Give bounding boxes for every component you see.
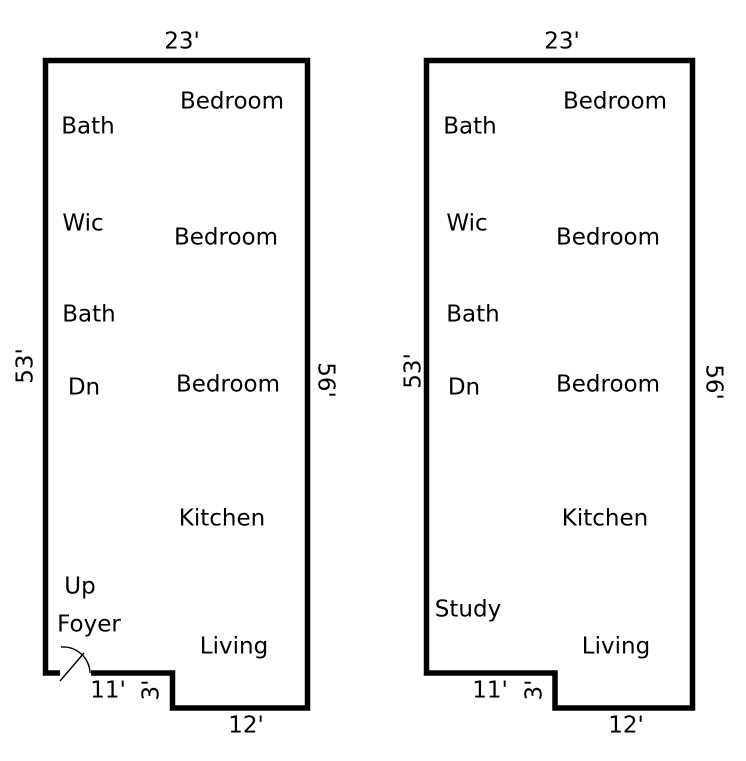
right-unit-bottom-left-dimension: 11' (472, 680, 508, 703)
left-unit-kitchen-label: Kitchen (179, 508, 265, 531)
left-unit-bedroom-top-label: Bedroom (180, 91, 284, 114)
left-unit-left-depth-dimension: 53' (15, 348, 38, 384)
left-unit-wic-label: Wic (62, 213, 103, 236)
left-unit-bedroom-middle-label: Bedroom (174, 227, 278, 250)
left-unit-stairs-down-label: Dn (68, 377, 100, 400)
left-unit-foyer-label: Foyer (57, 614, 121, 637)
right-unit-bath-middle-label: Bath (446, 304, 499, 327)
right-unit-left-depth-dimension: 53' (403, 353, 426, 389)
right-unit-top-width-dimension: 23' (544, 31, 580, 54)
right-unit-bedroom-middle-label: Bedroom (556, 227, 660, 250)
left-unit-stairs-up-label: Up (64, 576, 95, 599)
left-unit-notch-dimension: 3' (141, 680, 164, 701)
left-unit-bottom-left-dimension: 11' (90, 680, 126, 703)
left-unit-right-depth-dimension: 56' (314, 362, 337, 398)
floorplan-canvas: 23' 53' 56' Bedroom Bath Wic Bedroom Bat… (0, 0, 746, 761)
left-unit-living-label: Living (200, 636, 268, 659)
right-unit-stairs-down-label: Dn (448, 377, 480, 400)
right-unit-bottom-right-dimension: 12' (608, 715, 644, 738)
left-unit-bath-top-label: Bath (61, 116, 114, 139)
left-unit-bedroom-lower-label: Bedroom (176, 374, 280, 397)
right-unit-wic-label: Wic (446, 213, 487, 236)
right-unit-study-label: Study (435, 599, 501, 622)
left-unit-top-width-dimension: 23' (164, 31, 200, 54)
right-unit-living-label: Living (582, 636, 650, 659)
right-unit-right-depth-dimension: 56' (702, 364, 725, 400)
right-unit-notch-dimension: 3' (524, 680, 547, 701)
left-unit-bath-middle-label: Bath (62, 304, 115, 327)
right-unit-bedroom-lower-label: Bedroom (556, 374, 660, 397)
right-unit-bath-top-label: Bath (443, 116, 496, 139)
right-unit-kitchen-label: Kitchen (562, 508, 648, 531)
right-unit-bedroom-top-label: Bedroom (563, 91, 667, 114)
left-unit-bottom-right-dimension: 12' (228, 715, 264, 738)
left-unit-door-swing-arc (61, 647, 90, 673)
left-unit-door-leaf (60, 653, 84, 681)
